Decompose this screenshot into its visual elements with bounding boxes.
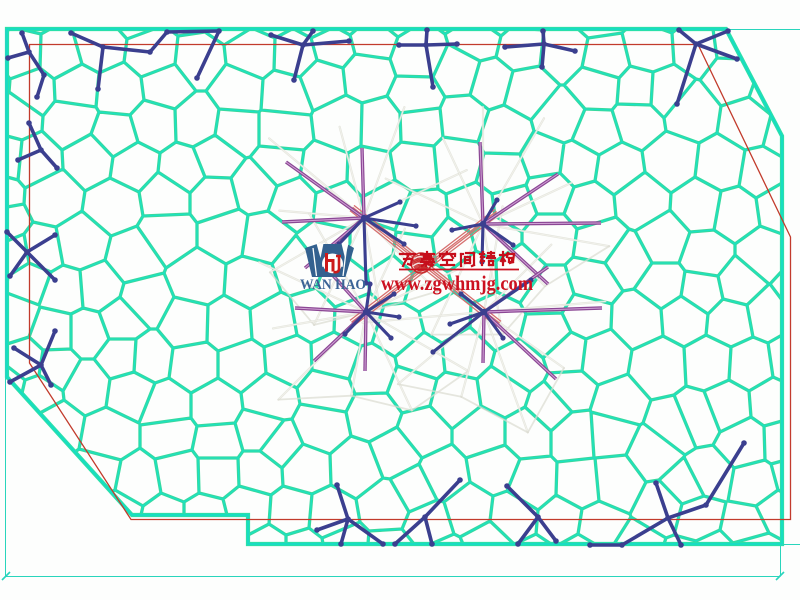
svg-text:www.zgwhmjg.com: www.zgwhmjg.com: [381, 271, 533, 295]
svg-text:WAN HAO: WAN HAO: [300, 277, 366, 293]
